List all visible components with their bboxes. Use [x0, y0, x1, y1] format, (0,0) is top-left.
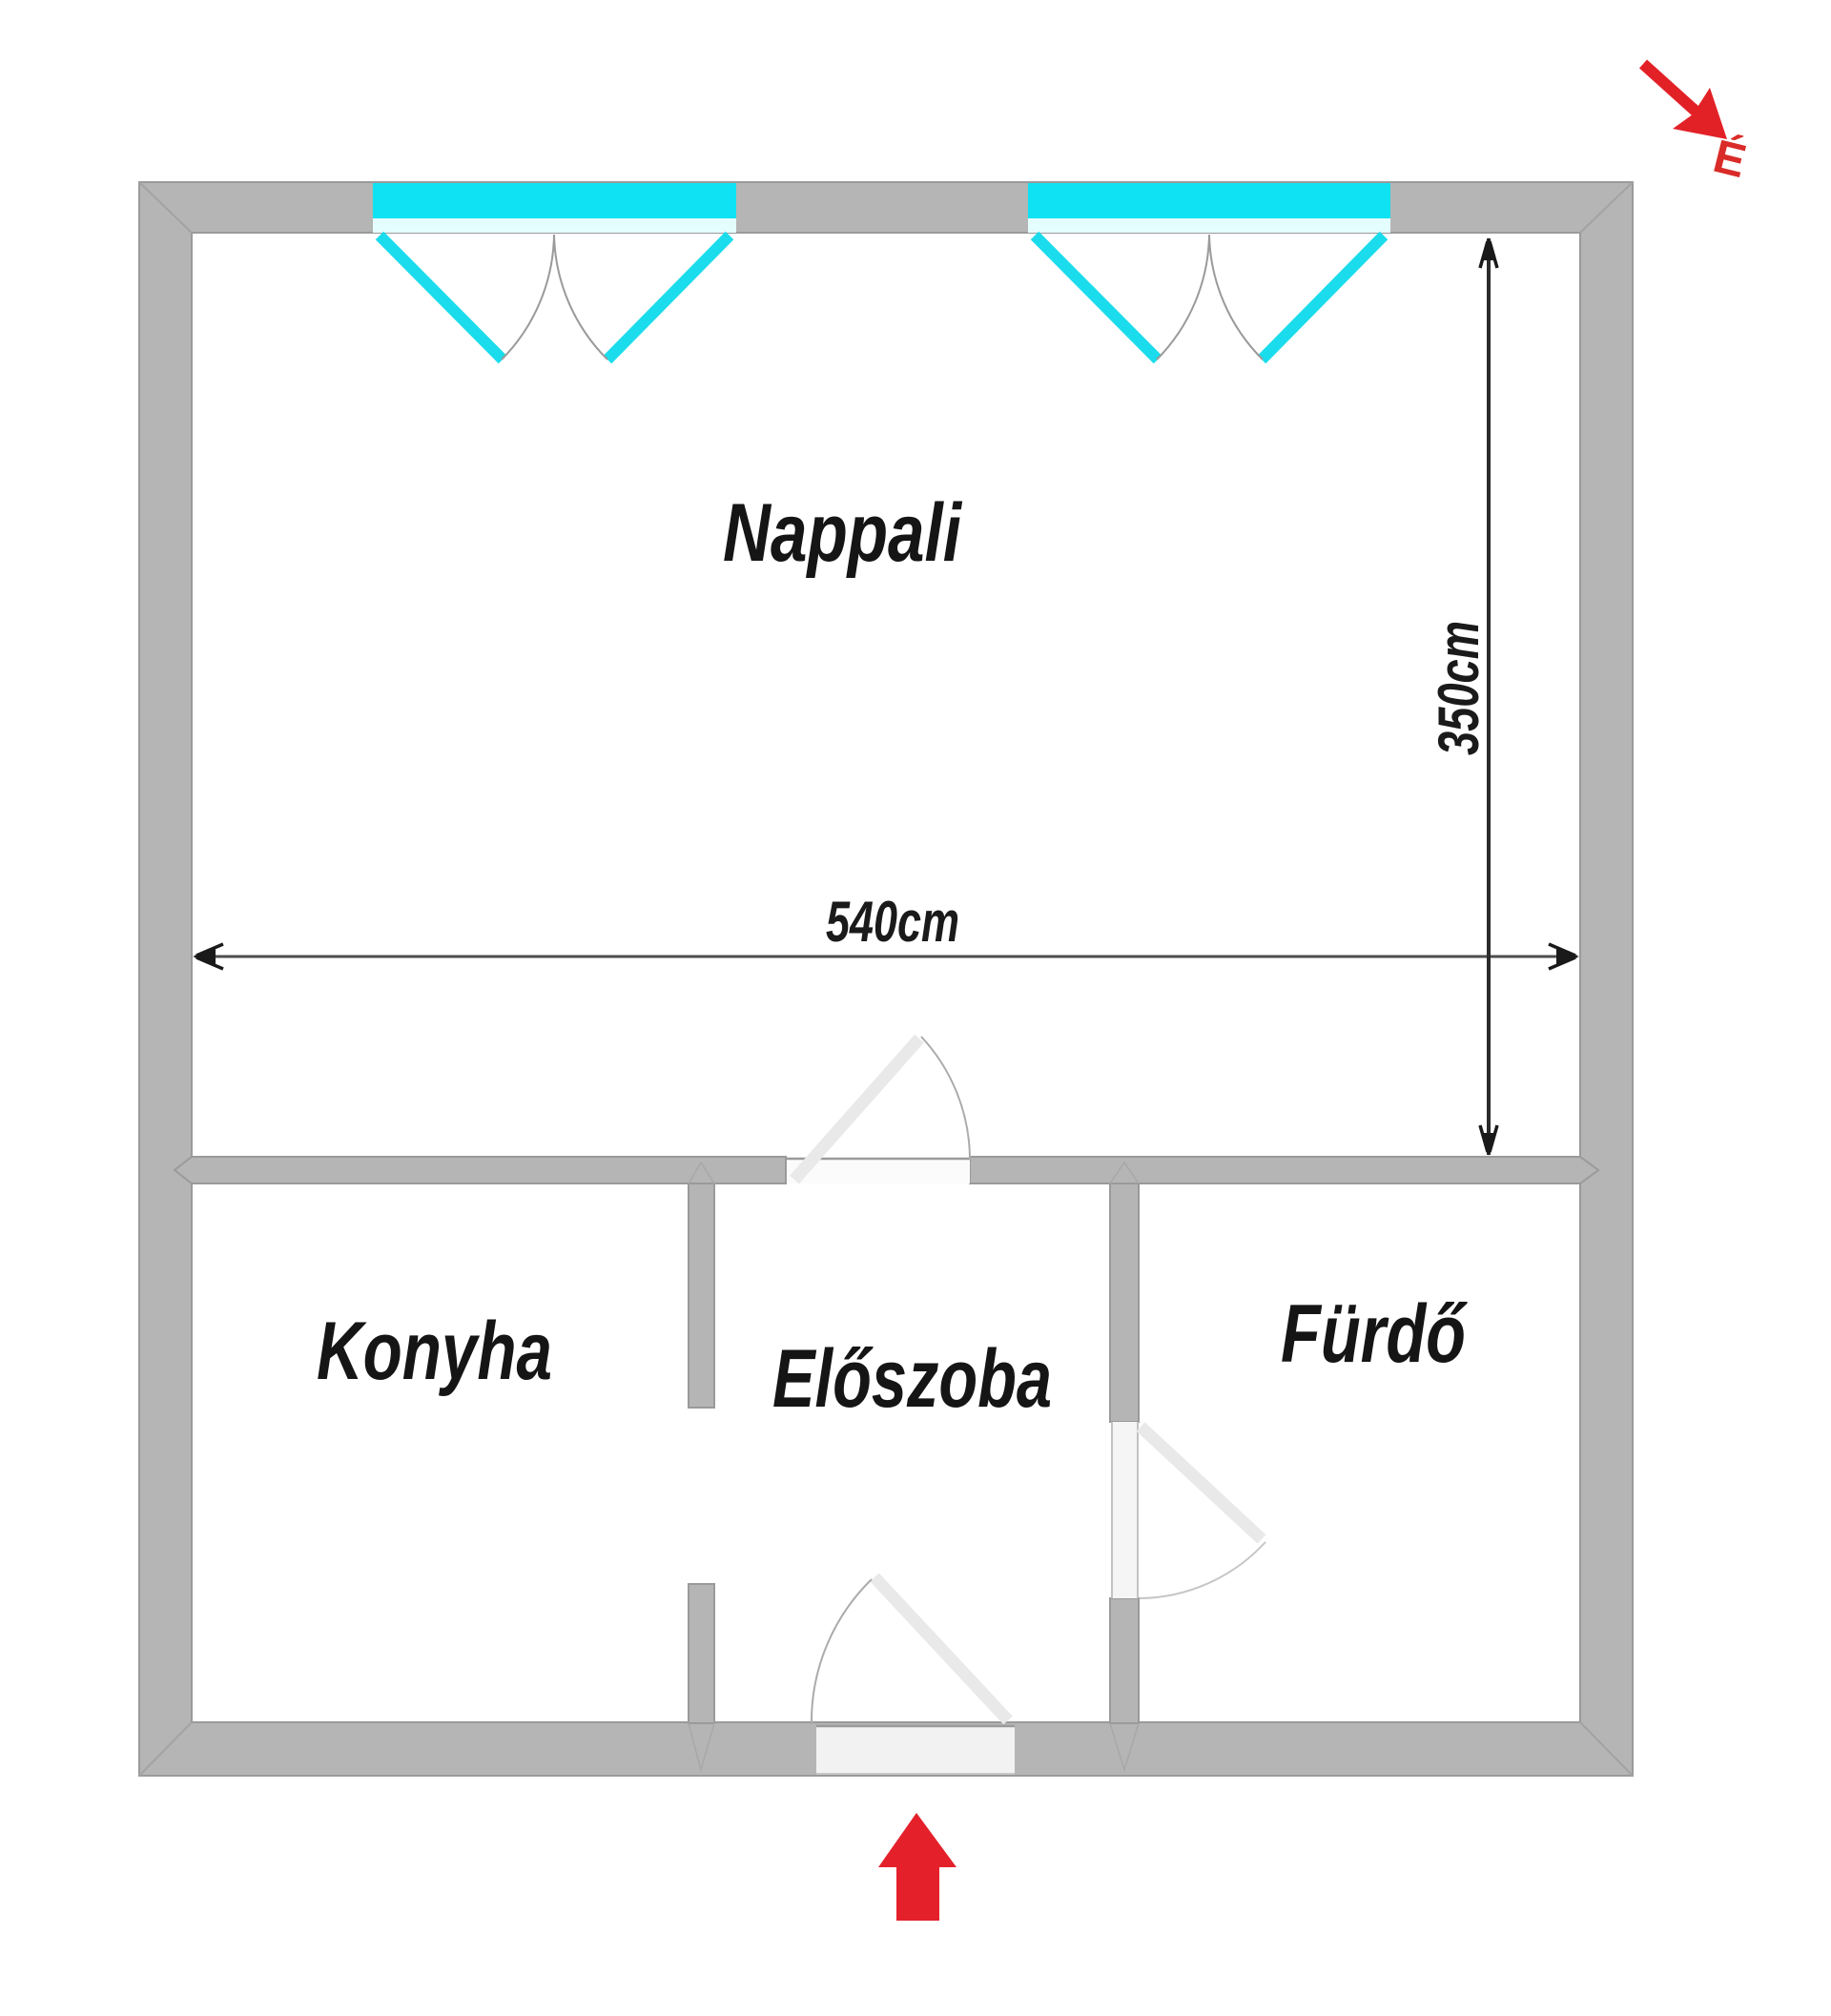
svg-text:Nappali: Nappali [723, 487, 963, 579]
svg-text:Konyha: Konyha [317, 1306, 552, 1397]
svg-text:Fürdő: Fürdő [1281, 1288, 1468, 1380]
svg-text:350cm: 350cm [1427, 621, 1491, 755]
svg-text:Előszoba: Előszoba [772, 1333, 1052, 1425]
svg-text:540cm: 540cm [826, 890, 959, 954]
